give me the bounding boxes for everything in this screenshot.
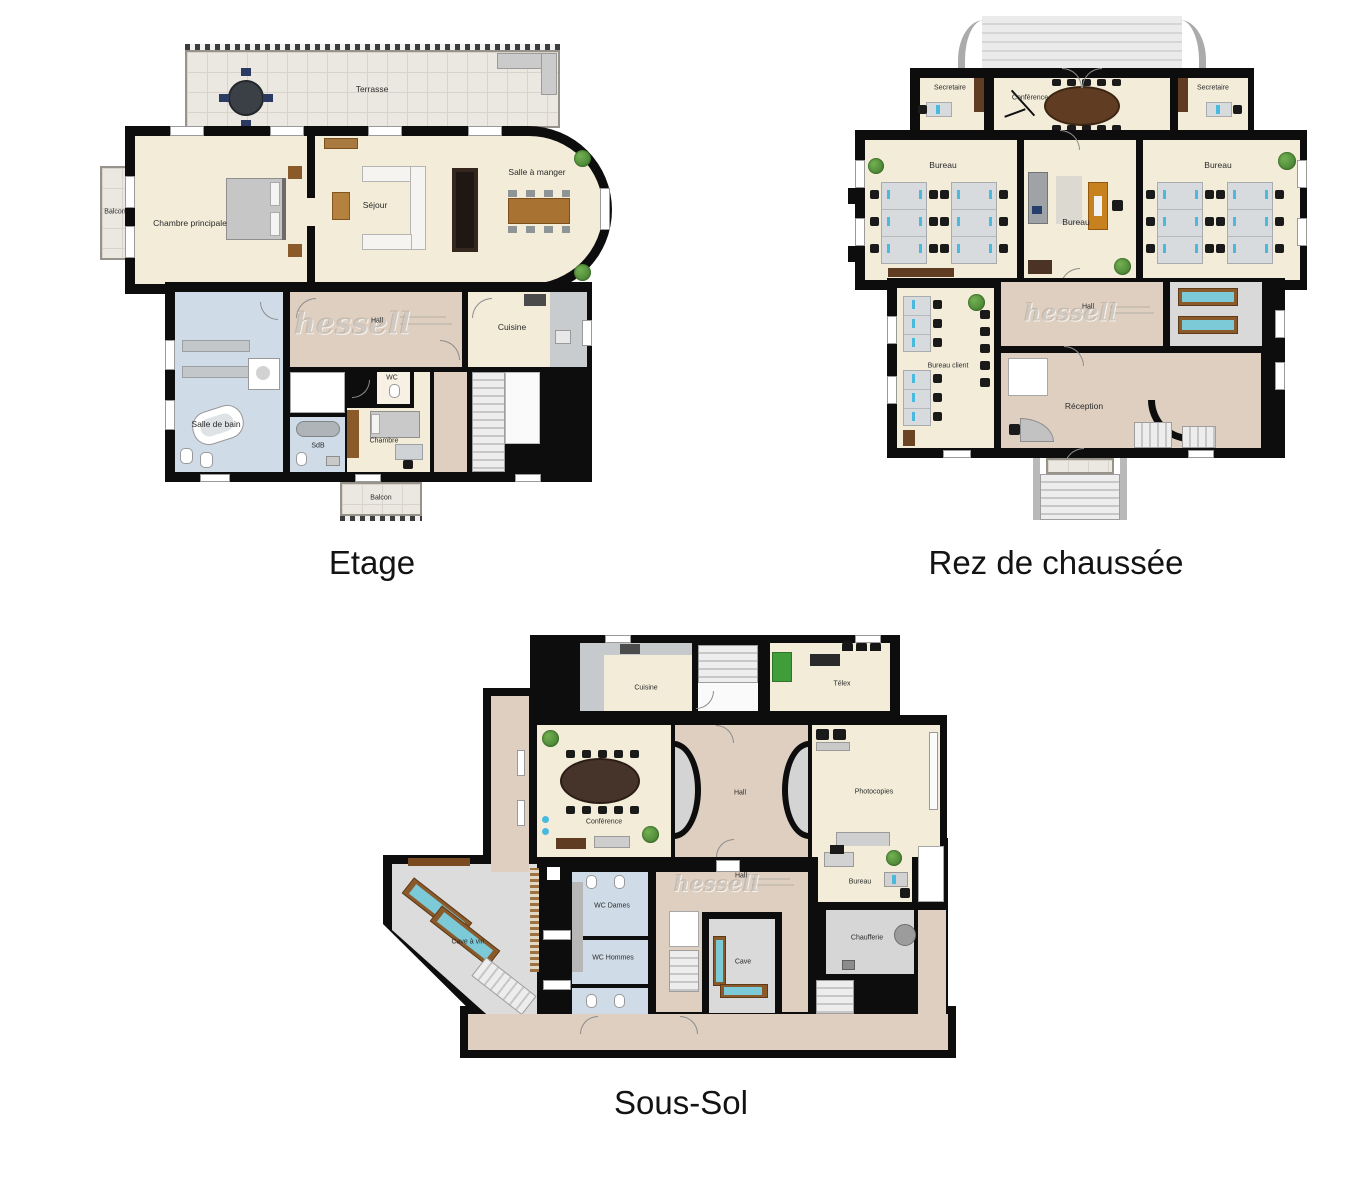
toilet	[614, 994, 625, 1008]
watermark: hessell	[294, 307, 411, 342]
room-label: Hall	[735, 873, 747, 880]
cluster-chairs	[870, 190, 879, 199]
room-label: Secretaire	[934, 85, 966, 92]
window	[270, 126, 304, 136]
boiler	[894, 924, 916, 946]
window	[517, 750, 525, 776]
cluster-chairs	[933, 374, 942, 383]
coffee-table	[332, 192, 350, 220]
entry-landing	[1046, 458, 1114, 474]
chimney	[848, 246, 856, 262]
room-label: Cuisine	[498, 322, 526, 332]
window	[125, 226, 135, 258]
table-top	[1182, 320, 1234, 330]
exterior-staircase	[1040, 474, 1120, 520]
room-label: Cuisine	[634, 685, 657, 692]
kitchen-counter	[580, 643, 604, 711]
window	[468, 126, 502, 136]
cabinet	[1028, 260, 1052, 274]
media-cabinet	[456, 172, 474, 248]
curved-niche	[675, 741, 701, 839]
room-label: Secretaire	[1197, 85, 1229, 92]
desk	[884, 872, 908, 887]
conference-table	[560, 758, 640, 804]
floorplan-soussol: hessell Cuisine Télex Conférence Hall Ph…	[380, 630, 980, 1062]
cluster-chairs	[940, 190, 949, 199]
window	[855, 218, 865, 246]
balcony-railing	[340, 516, 422, 521]
chair-row	[980, 310, 990, 319]
room-label: Bureau	[1204, 160, 1231, 170]
chair	[403, 460, 413, 469]
sink	[326, 456, 340, 466]
room-label: Réception	[1065, 401, 1103, 411]
window	[165, 400, 175, 430]
printer-row	[842, 640, 853, 651]
monitors	[887, 190, 890, 199]
wood-panel	[974, 78, 984, 112]
telex-desk	[810, 654, 840, 666]
terrace-table	[228, 80, 264, 116]
shelf-unit	[929, 732, 938, 810]
wall	[572, 936, 648, 940]
corridor	[491, 696, 529, 872]
wood-panel	[1178, 78, 1188, 112]
room-label: WC Dames	[594, 903, 630, 910]
plant	[1114, 258, 1131, 275]
closet	[290, 372, 345, 413]
desk	[395, 444, 423, 460]
stove	[620, 644, 640, 654]
vanity	[182, 366, 250, 378]
room-label: SdB	[311, 443, 324, 450]
corridor	[468, 1014, 948, 1050]
plant	[886, 850, 902, 866]
wardrobe	[347, 410, 359, 458]
staircase	[1134, 422, 1172, 448]
staircase	[669, 950, 699, 992]
room-label: Cave	[735, 959, 751, 966]
window	[368, 126, 402, 136]
room-label: Chambre principale	[153, 218, 227, 228]
room-label: Bureau client	[928, 363, 969, 370]
cluster-chairs	[1205, 190, 1214, 199]
staircase	[1182, 426, 1216, 448]
room-label: Hall	[371, 318, 383, 325]
room-label: Terrasse	[356, 84, 389, 94]
room-label: Télex	[833, 681, 850, 688]
curved-niche	[782, 741, 808, 839]
room-label: WC	[386, 375, 398, 382]
wall	[572, 984, 648, 988]
chair	[1233, 105, 1242, 114]
dining-table	[508, 198, 570, 224]
monitors	[957, 190, 960, 199]
floorplan-etage: hessell Terrasse Balcon Chambre principa…	[100, 40, 615, 525]
window	[125, 176, 135, 208]
desk-chairs	[816, 729, 829, 740]
bed-pillow	[270, 182, 280, 206]
closet	[1008, 358, 1048, 396]
nightstand	[288, 166, 302, 179]
cabinet	[556, 838, 586, 849]
window	[355, 474, 381, 482]
room-label: Conférence	[586, 819, 622, 826]
window	[943, 450, 971, 458]
shelf	[324, 138, 358, 149]
monitor	[1216, 105, 1220, 114]
window	[600, 188, 610, 230]
bench	[594, 836, 630, 848]
wine-rack-top	[716, 940, 723, 982]
corridor	[918, 910, 946, 1020]
plant	[574, 150, 591, 167]
sofa	[1028, 172, 1048, 224]
room-chambre	[414, 372, 430, 408]
door-gap	[307, 198, 315, 226]
cluster-chairs	[929, 190, 938, 199]
bed-pillow	[371, 414, 380, 434]
bed-pillow	[270, 212, 280, 236]
room-label: Photocopies	[855, 789, 894, 796]
cluster-chairs	[1216, 190, 1225, 199]
title-rdc: Rez de chaussée	[880, 544, 1232, 582]
room-label: Bureau	[929, 160, 956, 170]
chair-row	[508, 190, 570, 197]
window	[887, 316, 897, 344]
monitors	[912, 300, 915, 309]
room-label: Chambre	[370, 438, 399, 445]
window	[855, 160, 865, 188]
cluster-chairs	[1275, 190, 1284, 199]
monitors	[1233, 190, 1236, 199]
desk	[816, 742, 850, 751]
wine-rack-top	[724, 987, 762, 995]
stair-wall	[1033, 458, 1040, 520]
room-label: Conférence	[1012, 95, 1048, 102]
room-label: Salle à manger	[508, 167, 565, 177]
stair-landing	[505, 372, 540, 444]
window	[1297, 218, 1307, 246]
plant	[1278, 152, 1296, 170]
plant	[574, 264, 591, 281]
desk-column	[903, 370, 931, 426]
toilet	[296, 452, 307, 466]
desk-column	[903, 296, 931, 352]
sink	[555, 330, 571, 344]
sideboard	[888, 268, 954, 277]
terrace-chair	[241, 68, 251, 76]
room-wc-hommes	[572, 940, 648, 984]
stair-wall	[1120, 458, 1127, 520]
computer	[830, 845, 844, 854]
table-top	[1182, 292, 1234, 302]
vanity	[182, 340, 250, 352]
bathtub-small	[296, 421, 340, 437]
hall-corridor	[434, 372, 467, 472]
toilet	[586, 994, 597, 1008]
room-label: Balcon	[370, 495, 391, 502]
cluster-chairs	[999, 190, 1008, 199]
wall	[540, 880, 574, 1022]
toilet	[614, 875, 625, 889]
window	[515, 474, 541, 482]
cabinet	[903, 430, 915, 446]
conference-chairs	[1052, 79, 1061, 86]
staircase	[472, 372, 505, 472]
room-label: WC Hommes	[592, 955, 634, 962]
plant	[642, 826, 659, 843]
staircase	[698, 645, 758, 683]
title-etage: Etage	[250, 544, 494, 582]
door-gap	[543, 930, 571, 940]
conference-chairs	[566, 806, 575, 814]
wall-rack	[530, 868, 539, 972]
window	[1188, 450, 1214, 458]
window	[855, 635, 881, 643]
window	[582, 320, 592, 346]
chair	[918, 105, 927, 114]
window	[517, 800, 525, 826]
sofa	[362, 234, 412, 250]
monitors	[912, 374, 915, 383]
desk	[824, 852, 854, 867]
plant	[542, 730, 559, 747]
utility-box	[842, 960, 855, 970]
toilet	[200, 452, 213, 468]
room-label: Bureau	[1062, 217, 1089, 227]
window	[165, 340, 175, 370]
closet	[669, 911, 699, 947]
window	[1297, 160, 1307, 188]
nightstand	[288, 244, 302, 257]
toilet	[389, 384, 400, 398]
conference-chairs	[566, 750, 575, 758]
window	[1275, 310, 1285, 338]
storage-room	[918, 846, 944, 902]
room-label: Hall	[1082, 304, 1094, 311]
window	[605, 635, 631, 643]
window	[170, 126, 204, 136]
plant	[968, 294, 985, 311]
bed-headboard	[282, 178, 286, 240]
room-label: Chaufferie	[851, 935, 883, 942]
toilet	[180, 448, 193, 464]
title-soussol: Sous-Sol	[530, 1084, 832, 1122]
room-label: Cave à vin	[451, 939, 484, 946]
chair-row	[508, 226, 570, 233]
window	[200, 474, 230, 482]
chair	[1112, 200, 1123, 211]
window	[1275, 362, 1285, 390]
stove	[524, 294, 546, 306]
server-cabinet	[772, 652, 792, 682]
monitor	[936, 105, 940, 114]
room-label: Hall	[734, 790, 746, 797]
shower-drain	[256, 366, 270, 380]
room-label: Salle de bain	[191, 419, 240, 429]
stool	[542, 816, 549, 823]
floorplan-rdc: hessell Secretaire Conférence Secretaire…	[848, 10, 1313, 522]
staircase	[816, 980, 854, 1014]
exec-desk-panel	[1094, 196, 1102, 216]
plant	[868, 158, 884, 174]
monitor	[892, 875, 896, 884]
chair	[900, 888, 910, 898]
chimney	[848, 188, 856, 204]
chair	[1009, 424, 1020, 435]
cushion	[1032, 206, 1042, 214]
room-label: Séjour	[363, 200, 388, 210]
wc-annex	[572, 988, 648, 1016]
cluster-chairs	[933, 300, 942, 309]
conference-table	[1044, 86, 1120, 126]
monitors	[1163, 190, 1166, 199]
room-label: Balcon	[104, 209, 125, 216]
door-gap	[543, 980, 571, 990]
shelf	[408, 858, 470, 866]
sofa	[410, 166, 426, 250]
shower-column	[572, 882, 583, 972]
watermark: hessell	[1023, 298, 1116, 327]
window	[887, 376, 897, 404]
room-label: Bureau	[849, 879, 872, 886]
cluster-chairs	[1146, 190, 1155, 199]
toilet	[586, 875, 597, 889]
terrace-sofa	[541, 53, 557, 95]
